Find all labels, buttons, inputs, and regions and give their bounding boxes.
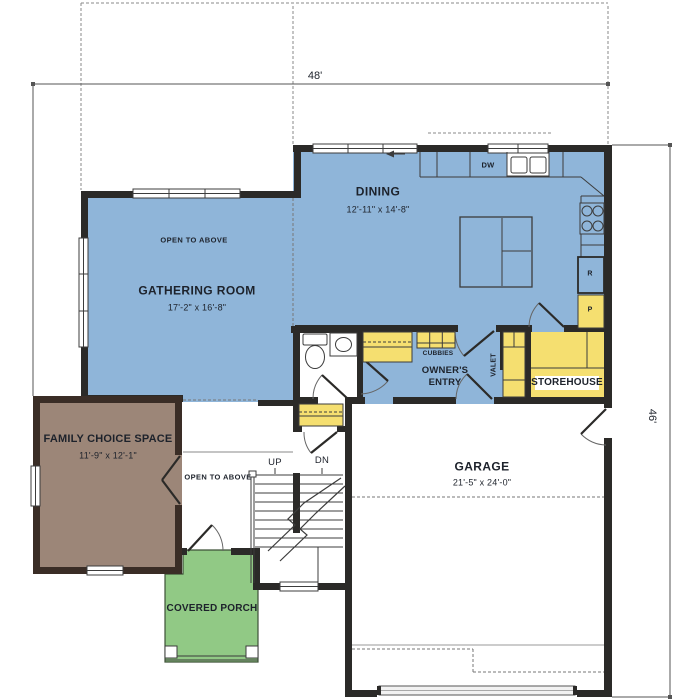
garage-name: GARAGE <box>454 460 509 475</box>
window-family-left <box>31 466 40 506</box>
window-stair-bottom <box>280 582 318 591</box>
window-gathering-left <box>79 238 88 347</box>
garage-service-door-leaf <box>581 409 606 434</box>
garage-floor-lines <box>352 497 604 672</box>
covered-porch-name: COVERED PORCH <box>167 603 258 616</box>
closet-door-leaf <box>311 432 337 453</box>
kitchen-sink <box>507 153 549 176</box>
dishwasher-label: DW <box>482 160 495 169</box>
floor-plan: 48' 46' OPEN TO ABOVE GATHERING ROOM 17'… <box>0 0 700 700</box>
height-dimension-label: 46' <box>644 409 658 423</box>
porch-post <box>165 646 177 658</box>
window-kitchen-top <box>488 144 548 153</box>
garage-door <box>377 686 577 695</box>
window-dining-top <box>313 144 417 153</box>
cubbies-label: CUBBIES <box>423 350 454 358</box>
owners-entry-name: OWNER'S ENTRY <box>411 365 479 389</box>
family-choice-space-dims: 11'-9" x 12'-1" <box>79 450 137 461</box>
bench <box>363 332 412 362</box>
porch-door-leaf <box>188 525 212 551</box>
storehouse-name: STOREHOUSE <box>531 377 603 390</box>
refrigerator-label: R <box>587 271 592 280</box>
stair-open-above-note: OPEN TO ABOVE <box>184 472 251 481</box>
dining-room-name: DINING <box>356 185 400 200</box>
hall-closet <box>299 404 343 426</box>
valet-label: VALET <box>491 353 500 376</box>
garage-dims: 21'-5" x 24'-0" <box>453 477 511 488</box>
porch-post <box>246 646 258 658</box>
gathering-open-above-note: OPEN TO ABOVE <box>160 235 227 244</box>
pantry-label: P <box>588 307 593 316</box>
stair-up-label: UP <box>268 457 282 469</box>
dining-kitchen-floor <box>293 145 612 332</box>
sink-icon <box>336 338 352 352</box>
family-choice-space-floor <box>33 396 182 574</box>
cubbies-unit <box>417 332 455 348</box>
toilet-icon <box>306 346 325 369</box>
width-dimension-label: 48' <box>308 70 322 84</box>
stair-down-label: DN <box>315 455 329 467</box>
stair-break-line <box>268 478 341 551</box>
gathering-room-dims: 17'-2" x 16'-8" <box>168 302 226 313</box>
floor-plan-drawing <box>0 0 700 700</box>
window-family-bottom <box>87 566 123 575</box>
family-choice-space-name: FAMILY CHOICE SPACE <box>44 433 173 447</box>
staircase <box>249 468 345 583</box>
gathering-room-name: GATHERING ROOM <box>138 284 255 299</box>
window-gathering-top <box>133 189 240 198</box>
dining-room-dims: 12'-11" x 14'-8" <box>347 204 410 215</box>
valet-cabinet <box>503 332 525 397</box>
range-cooktop <box>580 203 604 234</box>
toilet-tank <box>303 334 327 345</box>
